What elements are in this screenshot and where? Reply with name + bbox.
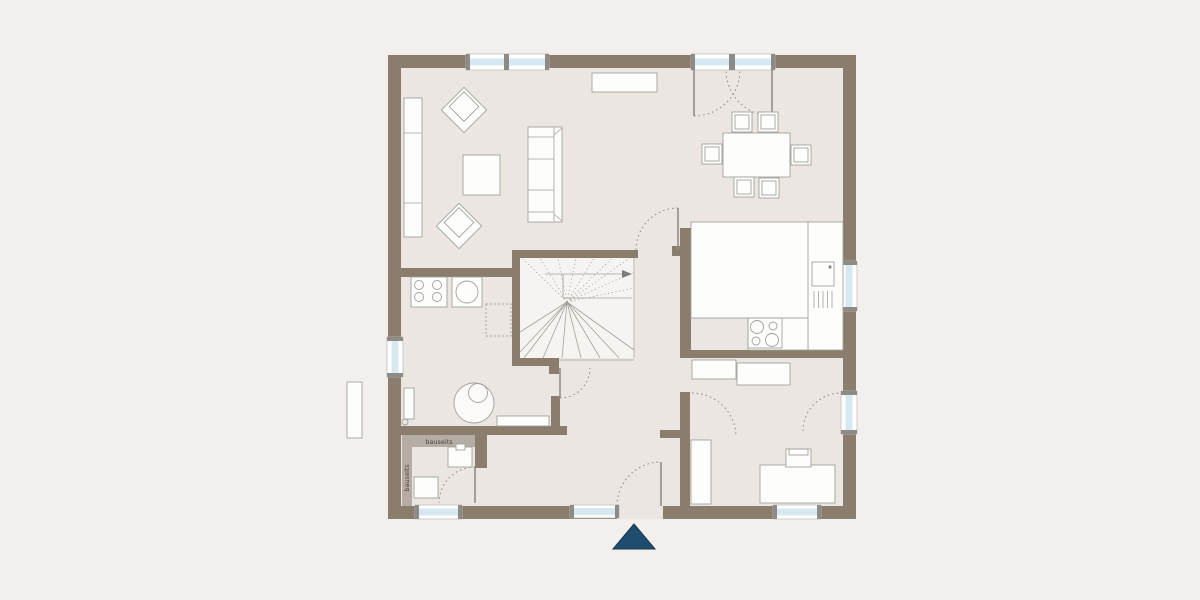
- desk: [760, 465, 835, 503]
- dining-chair: [732, 112, 752, 132]
- kitchen-counter: [691, 222, 810, 318]
- window-post: [387, 337, 403, 341]
- window-glazing: [419, 509, 458, 516]
- wall-hall-nib: [660, 430, 690, 438]
- winder-staircase: [520, 258, 635, 360]
- door-post: [729, 54, 735, 70]
- door-post: [771, 54, 775, 70]
- dining-chair: [758, 112, 778, 132]
- floor-plan-canvas: bauseits bauseits: [0, 0, 1200, 600]
- wall-wc-right: [475, 435, 487, 468]
- sidelight-glazing: [574, 508, 615, 515]
- wc-sink: [448, 444, 472, 467]
- window-glazing: [846, 265, 853, 307]
- wall-stair-left: [512, 250, 520, 366]
- utility-counter: [497, 416, 549, 426]
- faucet: [828, 265, 831, 268]
- dining-chair: [791, 145, 811, 165]
- coffee-table: [463, 155, 500, 195]
- window-glazing: [846, 395, 853, 430]
- wardrobe-cabinet: [691, 440, 711, 504]
- window-post: [504, 54, 509, 70]
- dining-chair: [734, 177, 754, 197]
- chair-outer: [786, 449, 811, 467]
- wall-utility-right: [551, 396, 560, 426]
- machine-body: [452, 277, 482, 307]
- window-post: [458, 505, 462, 519]
- wall-stub-stair: [549, 366, 559, 374]
- wall-room-left: [680, 392, 690, 506]
- sofa: [528, 127, 562, 222]
- window-post: [841, 430, 857, 434]
- window-post: [841, 391, 857, 395]
- sofa-outer: [528, 127, 562, 222]
- wall-kitchen-divider: [680, 228, 691, 358]
- window-room: [773, 505, 821, 519]
- onsite-label-left: bauseits: [403, 464, 411, 492]
- window-glazing: [392, 341, 399, 373]
- wall-stair-bottom: [512, 358, 559, 366]
- door-post: [570, 505, 574, 518]
- door-post: [691, 54, 695, 70]
- sideboard: [737, 363, 790, 385]
- window-wc: [415, 505, 462, 519]
- window-post: [387, 373, 403, 377]
- shower-tray: [414, 477, 438, 498]
- door-post: [615, 505, 619, 518]
- dining-table: [723, 133, 790, 177]
- window-post: [773, 505, 777, 519]
- dining-chair: [759, 178, 779, 198]
- window-post: [817, 505, 821, 519]
- door-opening: [617, 505, 663, 519]
- faucet: [456, 444, 465, 450]
- window-top: [466, 54, 549, 70]
- exterior-column: [347, 382, 362, 438]
- wall-stair-top: [512, 250, 638, 258]
- floor-plan-drawing: bauseits bauseits: [0, 0, 1200, 600]
- washer: [411, 277, 447, 307]
- wall-living-utility: [401, 268, 520, 277]
- window-post: [415, 505, 419, 519]
- desk-chair: [786, 449, 811, 467]
- window-post: [466, 54, 470, 70]
- shelf-unit: [404, 98, 422, 237]
- radiator: [404, 388, 414, 419]
- window-left: [387, 337, 403, 377]
- sideboard: [692, 360, 736, 379]
- window-glazing: [777, 509, 817, 516]
- onsite-label-top: bauseits: [425, 438, 453, 446]
- washing-machine: [452, 277, 482, 307]
- boiler-tank: [454, 383, 494, 423]
- sideboard: [592, 73, 657, 92]
- wall-utility-wc: [401, 426, 567, 435]
- dining-chair: [702, 144, 722, 164]
- wall-kitchen-bottom: [680, 350, 843, 358]
- window-post: [545, 54, 549, 70]
- boiler: [454, 383, 494, 423]
